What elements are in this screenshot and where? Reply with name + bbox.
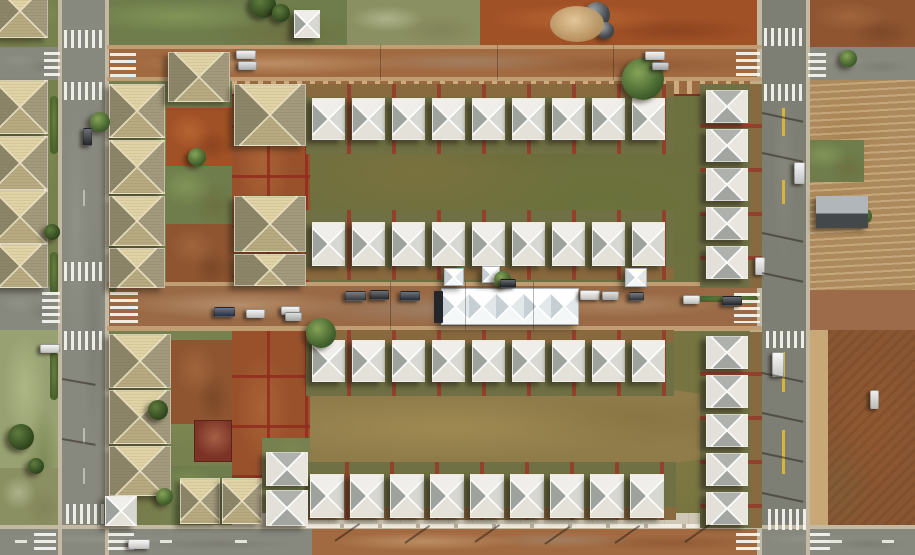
houses-north-row-house-1	[312, 98, 345, 140]
event-tent-small-1	[444, 268, 464, 286]
farm-field-upper-right	[806, 78, 915, 290]
houses-second-row-house-4	[432, 222, 465, 266]
crosswalk-right-mid	[766, 331, 806, 348]
curb-top-street-n	[107, 45, 762, 49]
crosswalk-right-north	[764, 28, 804, 46]
dirt-top-right-corner	[806, 0, 915, 47]
lane-dash-2	[160, 540, 172, 543]
crosswalk-arm-e-topright	[808, 53, 826, 78]
event-tent-small-3	[625, 268, 647, 287]
car-mid-street-5	[580, 290, 600, 300]
houses-second-row-house-7	[552, 222, 585, 266]
car-mid-street-10	[214, 307, 235, 317]
crosswalk-arm-e-mid	[110, 292, 138, 323]
new-house-b6	[105, 496, 137, 526]
crosswalk-arm-w-bottom	[34, 533, 56, 551]
houses-second-row-house-6	[512, 222, 545, 266]
houses-third-row-house-3	[392, 340, 425, 382]
curb-mid-street-n	[107, 282, 762, 286]
tree-top-edge-2	[272, 4, 290, 22]
center-line-yellow-2	[782, 180, 785, 204]
lane-dash-5	[882, 540, 894, 543]
houses-third-row-house-4	[432, 340, 465, 382]
car-mid-street-11	[246, 309, 265, 318]
car-mid-street-2	[370, 290, 389, 300]
old-house-a3	[109, 196, 165, 246]
car-right-road-1	[794, 162, 805, 184]
tent-roof-segment	[469, 289, 496, 324]
tent-roof-segment	[496, 289, 523, 324]
tree-vacant-lot-2	[28, 458, 44, 474]
crosswalk-right-bottom	[768, 509, 806, 530]
curb-right-road-e	[806, 0, 810, 555]
bottom-street-dirt	[312, 528, 762, 555]
houses-north-row-house-2	[352, 98, 385, 140]
old-house-a4	[109, 248, 165, 288]
car-mid-street-1	[345, 291, 366, 301]
tent-roof-segment	[626, 269, 646, 286]
crosswalk-right-south	[764, 84, 804, 101]
old-house-nw-corner	[0, 0, 48, 38]
houses-third-row-house-9	[632, 340, 665, 382]
houses-second-row-house-8	[592, 222, 625, 266]
tree-block-a-2	[188, 148, 206, 166]
tree-block-a-1	[90, 112, 110, 132]
tree-mid-street	[306, 318, 336, 348]
old-house-a7	[234, 196, 306, 252]
houses-third-row-house-7	[552, 340, 585, 382]
crosswalk-arm-w-mid	[42, 292, 60, 323]
block-a-grass-lot	[166, 166, 232, 224]
sand-pile	[550, 6, 604, 42]
old-house-b1	[109, 334, 171, 388]
car-left-road	[83, 128, 92, 146]
block-b-dirt-lot	[171, 340, 232, 424]
farm-green-patch	[806, 140, 864, 182]
crosswalk-left-mid-n	[64, 262, 106, 281]
block-wall-south	[306, 524, 762, 528]
wire-shadow-m3	[533, 282, 534, 330]
houses-north-row-house-7	[552, 98, 585, 140]
small-building-top	[294, 10, 320, 38]
lane-dash-3	[235, 540, 247, 543]
crosswalk-left-bottom	[66, 504, 106, 524]
houses-south-row-house-5	[470, 474, 504, 518]
old-house-a5	[168, 52, 230, 102]
wire-shadow-m1	[390, 282, 391, 330]
houses-north-row-house-4	[432, 98, 465, 140]
hedge-w-1	[50, 252, 58, 294]
lower-field-dry-patch	[240, 386, 754, 470]
houses-east-col-lower-house-4	[706, 453, 748, 486]
wire-shadow-m2	[465, 282, 466, 330]
wire-shadow-t2	[497, 45, 498, 80]
crosswalk-left-mid-s	[64, 331, 106, 350]
wire-shadow-t3	[613, 45, 614, 80]
old-house-b4	[180, 478, 220, 524]
tent-roof-segment	[445, 269, 463, 285]
lane-dash-1	[15, 540, 27, 543]
houses-south-row-house-2	[350, 474, 384, 518]
old-house-a8	[234, 254, 306, 286]
houses-second-row-house-3	[392, 222, 425, 266]
houses-south-row-house-9	[630, 474, 664, 518]
houses-third-row-house-2	[352, 340, 385, 382]
wire-shadow-t1	[380, 45, 381, 80]
houses-second-row-house-2	[352, 222, 385, 266]
van-by-tent	[500, 279, 516, 288]
farm-shed	[816, 196, 868, 228]
houses-third-row-house-6	[512, 340, 545, 382]
tree-block-b-1	[148, 400, 168, 420]
center-line-yellow-4	[782, 430, 785, 474]
old-house-left-2	[0, 136, 48, 190]
old-house-a6	[234, 84, 306, 146]
hedge-sw-1	[50, 352, 58, 400]
houses-second-row-house-1	[312, 222, 345, 266]
tent-roof-segment	[551, 289, 578, 324]
hedge-nw-1	[50, 96, 58, 154]
car-mid-street-12	[285, 312, 302, 321]
aerial-photo-housing-development	[0, 0, 915, 555]
old-house-a1	[109, 84, 165, 138]
houses-east-col-upper-house-5	[706, 246, 748, 279]
old-house-left-3	[0, 190, 48, 244]
houses-south-row-house-3	[390, 474, 424, 518]
car-west-mid-road	[40, 344, 60, 353]
old-house-b5	[222, 478, 262, 524]
houses-south-row-house-4	[430, 474, 464, 518]
houses-east-col-upper-house-1	[706, 90, 748, 123]
houses-second-row-house-5	[472, 222, 505, 266]
houses-east-col-upper-house-4	[706, 207, 748, 240]
car-parked-top-1	[236, 50, 256, 59]
crosswalk-arm-e-top	[110, 53, 136, 78]
center-line-yellow-1	[782, 108, 785, 136]
houses-third-row-house-8	[592, 340, 625, 382]
crosswalk-arm-e-bottomright	[810, 533, 830, 551]
houses-east-col-lower-house-5	[706, 492, 748, 525]
car-mid-street-3	[400, 291, 420, 301]
tree-left-1	[44, 224, 60, 240]
old-house-left-1	[0, 80, 48, 134]
car-mid-street-6	[602, 291, 619, 300]
houses-south-row-house-1	[310, 474, 344, 518]
car-mid-street-8	[683, 295, 700, 304]
houses-north-row-house-6	[512, 98, 545, 140]
houses-north-row-house-5	[472, 98, 505, 140]
old-house-a2	[109, 140, 165, 194]
scrub-strip-top	[347, 0, 480, 47]
car-parked-top-4	[652, 62, 669, 70]
tree-vacant-lot-1	[8, 424, 34, 450]
car-mid-street-9	[722, 296, 742, 306]
houses-south-row-house-6	[510, 474, 544, 518]
houses-east-col-lower-house-1	[706, 336, 748, 369]
crosswalk-arm-w-bottomright	[736, 533, 760, 551]
truck-right-road	[772, 352, 784, 377]
car-right-field	[870, 390, 879, 409]
old-house-left-4	[0, 244, 48, 288]
construction-dirt-top	[480, 0, 762, 47]
curb-left-road-w	[58, 0, 62, 555]
houses-east-col-upper-house-3	[706, 168, 748, 201]
red-walled-shed-lot	[194, 420, 232, 462]
new-house-sw-1	[266, 452, 308, 486]
tree-right-road	[840, 50, 857, 67]
houses-east-col-lower-house-2	[706, 375, 748, 408]
houses-north-row-house-3	[392, 98, 425, 140]
tent-roof-segment	[524, 289, 551, 324]
car-parked-top-2	[238, 61, 257, 70]
houses-east-col-lower-house-3	[706, 414, 748, 447]
houses-north-row-house-8	[592, 98, 625, 140]
crosswalk-arm-w-top	[44, 52, 60, 77]
new-house-sw-2	[266, 490, 308, 526]
van-bottom-road	[128, 539, 150, 549]
houses-south-row-house-8	[590, 474, 624, 518]
block-a-dirt-lot-2	[166, 224, 232, 288]
crosswalk-left-south	[64, 82, 106, 100]
lane-dash-left-4	[83, 468, 85, 484]
houses-second-row-house-9	[632, 222, 665, 266]
dark-trailer	[434, 291, 443, 323]
tree-block-b-2	[156, 488, 173, 505]
houses-north-row-house-9	[632, 98, 665, 140]
lane-dash-4	[830, 540, 842, 543]
car-mid-street-7	[629, 292, 644, 301]
crosswalk-arm-w-topright	[736, 52, 760, 78]
car-parked-top-3	[645, 51, 665, 60]
houses-third-row-house-5	[472, 340, 505, 382]
crosswalk-left-north	[64, 30, 106, 48]
event-tent-main	[441, 288, 579, 325]
houses-east-col-upper-house-2	[706, 129, 748, 162]
houses-south-row-house-7	[550, 474, 584, 518]
vacant-lot-left-lower	[0, 468, 62, 530]
lane-dash-left-2	[83, 190, 85, 206]
